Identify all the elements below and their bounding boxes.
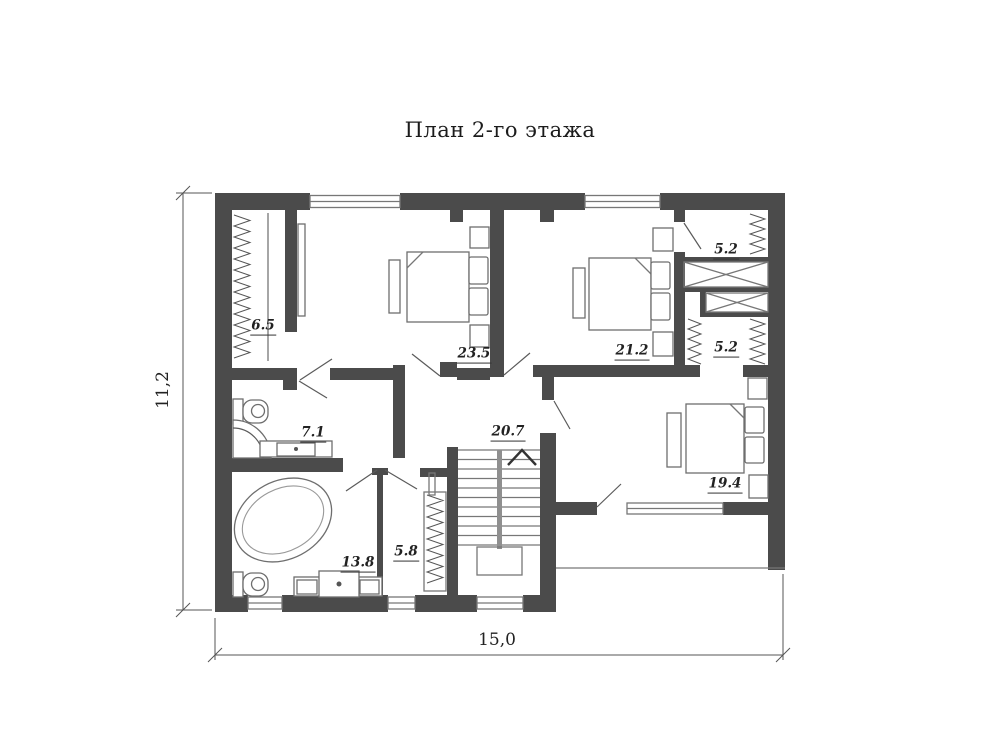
door-bathroom-7-1 — [299, 381, 327, 398]
room-label-corridor-5-8: 5.8 — [393, 545, 419, 562]
stair-rail — [497, 450, 502, 549]
wardrobe-hatch-upper-5-2 — [750, 214, 765, 254]
door-bathroom-13-8 — [346, 470, 377, 491]
room-label-bedroom-23-5: 23.5 — [457, 347, 492, 364]
wardrobe-hatch-6-5 — [234, 215, 250, 358]
room-label-bathroom-13-8: 13.8 — [341, 556, 376, 573]
room-label-bedroom-19-4: 19.4 — [708, 477, 743, 494]
room-label-bedroom-21-2: 21.2 — [615, 344, 650, 361]
door-closet-5-2 — [684, 223, 701, 249]
room-label-closet-upper-5-2: 5.2 — [713, 243, 739, 260]
wardrobe-hatch-5-8 — [427, 495, 443, 583]
dimension-height-label: 11,2 — [153, 371, 173, 409]
stairs-up-arrow-icon — [508, 450, 536, 465]
door-bedroom-23-5 — [412, 354, 440, 376]
room-label-hall-20-7: 20.7 — [491, 425, 526, 442]
door-balcony — [597, 484, 621, 507]
bathtub — [220, 462, 347, 579]
floor-plan-drawing — [0, 0, 1000, 735]
bed-bedroom-21-2 — [573, 228, 673, 356]
room-label-wardrobe-6-5: 6.5 — [250, 319, 276, 336]
door-corridor-5-8 — [385, 470, 417, 489]
wardrobe-hatch-lower-left-5-2 — [688, 319, 701, 364]
wardrobe-hatch-lower-right-5-2 — [750, 319, 765, 364]
room-label-bathroom-7-1: 7.1 — [300, 426, 326, 443]
door-bedroom-19-4 — [554, 401, 570, 429]
bathroom-13-8-fixtures — [220, 462, 382, 597]
dimension-width-label: 15,0 — [478, 630, 516, 650]
stairs — [458, 450, 540, 575]
room-label-closet-lower-5-2: 5.2 — [713, 341, 739, 358]
bed-bedroom-23-5 — [298, 224, 489, 347]
stair-landing — [477, 547, 522, 575]
floor-plan-page: План 2-го этажа — [0, 0, 1000, 735]
door-bedroom-suite — [300, 359, 332, 380]
door-bedroom-21-2 — [504, 353, 530, 375]
toilet-tank — [233, 572, 243, 597]
